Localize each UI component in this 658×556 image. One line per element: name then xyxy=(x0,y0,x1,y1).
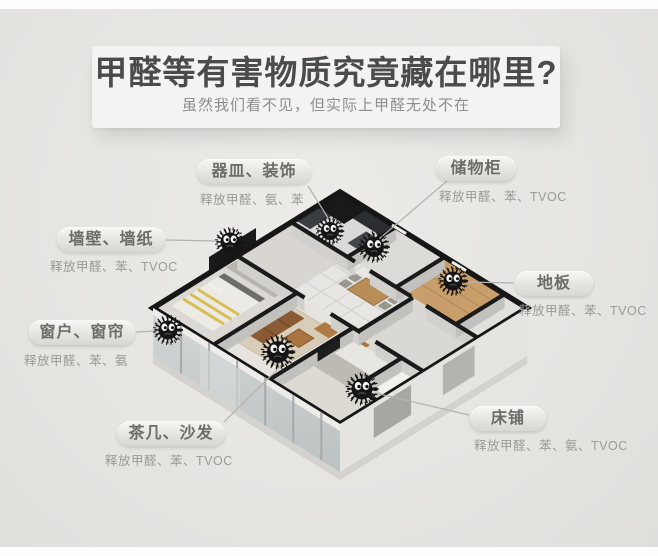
callout-pill: 茶几、沙发 xyxy=(117,421,225,446)
callout-pill: 窗户、窗帘 xyxy=(29,320,135,345)
monster-storage-icon xyxy=(360,233,388,261)
monster-window-icon xyxy=(155,317,182,344)
callout-detail: 释放甲醛、苯、氨、TVOC xyxy=(474,435,628,454)
callout-pill: 墙壁、墙纸 xyxy=(57,227,165,252)
callout-detail: 释放甲醛、苯、TVOC xyxy=(50,256,178,275)
monster-bed-icon xyxy=(347,374,377,404)
leader-line-walls-wallpaper xyxy=(166,240,218,241)
callout-pill: 床铺 xyxy=(470,406,546,431)
callout-pill: 地板 xyxy=(515,271,593,296)
callout-detail: 释放甲醛、苯、TVOC xyxy=(519,300,647,319)
monster-floor-icon xyxy=(440,268,467,295)
callout-detail: 释放甲醛、苯、TVOC xyxy=(439,186,567,205)
monster-sofa-icon xyxy=(262,336,293,367)
infographic-canvas: 甲醛等有害物质究竟藏在哪里? 虽然我们看不见，但实际上甲醛无处不在 xyxy=(0,0,658,556)
monster-kitchenware-icon xyxy=(317,218,343,244)
leader-line-storage-cabinet xyxy=(379,181,447,239)
callout-detail: 释放甲醛、氨、苯 xyxy=(200,189,304,208)
callout-detail: 释放甲醛、苯、氨 xyxy=(24,350,128,369)
monster-walls-icon xyxy=(217,229,244,256)
callout-pill: 器皿、装饰 xyxy=(197,159,311,184)
callout-detail: 释放甲醛、苯、TVOC xyxy=(105,450,233,469)
callout-pill: 储物柜 xyxy=(436,156,516,181)
